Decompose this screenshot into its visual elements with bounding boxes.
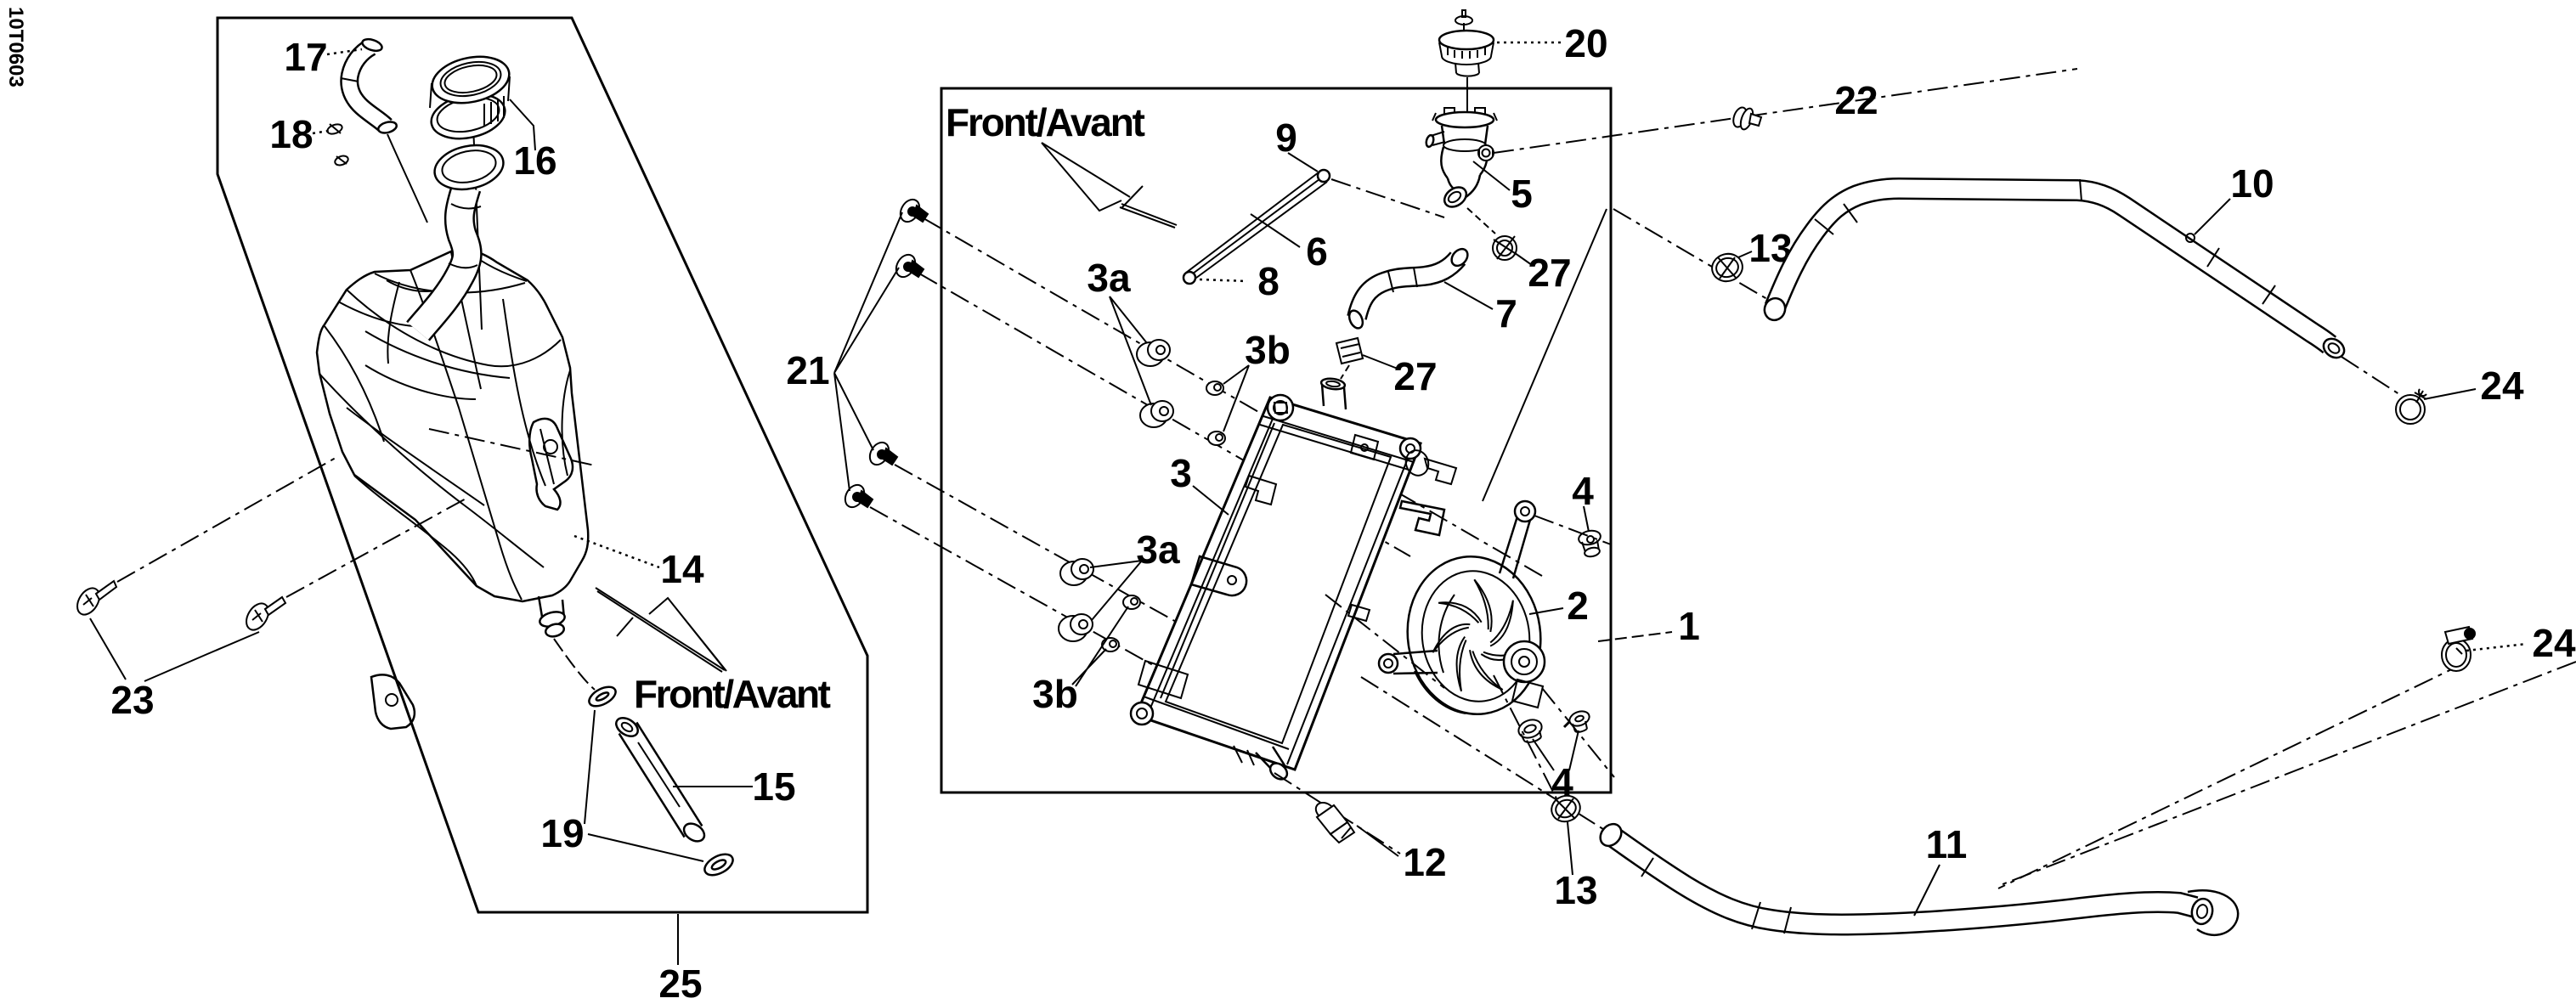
svg-text:21: 21 (786, 348, 829, 392)
svg-text:5: 5 (1511, 172, 1533, 216)
svg-text:27: 27 (1393, 354, 1437, 398)
svg-text:9: 9 (1275, 116, 1297, 160)
svg-text:11: 11 (1926, 822, 1968, 866)
svg-text:3b: 3b (1245, 328, 1291, 372)
svg-text:Front/Avant: Front/Avant (946, 100, 1145, 144)
svg-text:27: 27 (1528, 251, 1571, 295)
svg-text:13: 13 (1554, 868, 1597, 912)
svg-text:8: 8 (1257, 259, 1280, 303)
svg-text:25: 25 (658, 962, 702, 1004)
svg-text:19: 19 (540, 811, 584, 855)
svg-text:1: 1 (1678, 604, 1700, 648)
svg-text:18: 18 (269, 112, 313, 156)
svg-text:16: 16 (513, 138, 556, 183)
svg-text:4: 4 (1572, 469, 1594, 513)
svg-text:Front/Avant: Front/Avant (634, 672, 831, 716)
svg-text:14: 14 (660, 547, 704, 591)
svg-text:10T0603: 10T0603 (4, 7, 27, 87)
svg-text:23: 23 (110, 678, 154, 722)
svg-text:6: 6 (1306, 229, 1328, 274)
svg-text:17: 17 (284, 35, 327, 79)
svg-text:3a: 3a (1136, 527, 1180, 572)
svg-text:24: 24 (2532, 621, 2576, 665)
svg-text:12: 12 (1403, 840, 1446, 884)
svg-text:22: 22 (1834, 78, 1878, 122)
svg-text:10: 10 (2230, 161, 2274, 206)
svg-text:20: 20 (1564, 21, 1607, 65)
svg-text:7: 7 (1495, 291, 1517, 336)
svg-text:3: 3 (1170, 451, 1192, 495)
svg-text:2: 2 (1567, 584, 1589, 628)
svg-text:3a: 3a (1087, 256, 1131, 300)
svg-text:15: 15 (752, 764, 795, 809)
svg-text:24: 24 (2480, 364, 2524, 408)
svg-text:3b: 3b (1032, 672, 1078, 716)
